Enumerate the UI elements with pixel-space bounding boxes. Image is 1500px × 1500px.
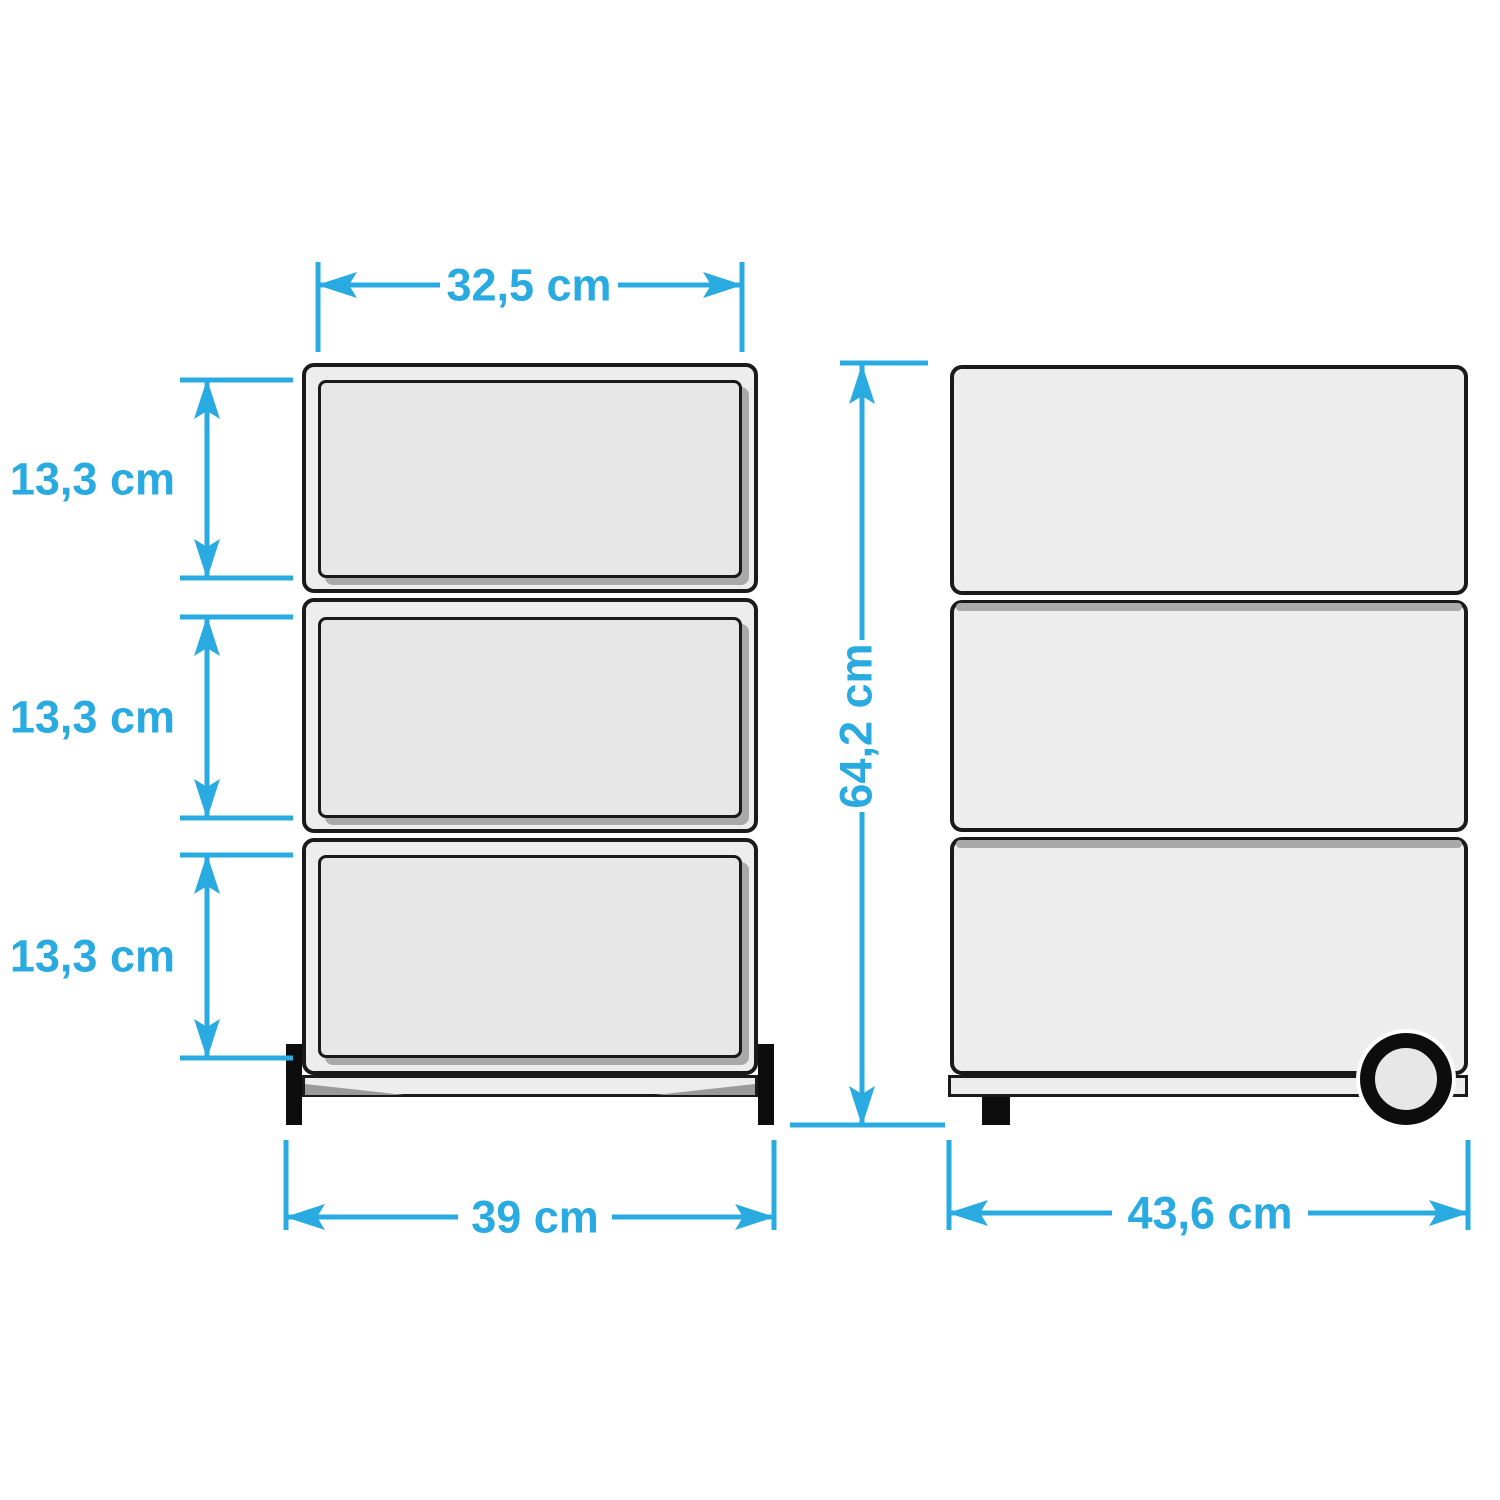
drawer-front-3 (318, 855, 742, 1058)
dim-drawer-height-3 (180, 855, 293, 1058)
drawer-front-2 (318, 617, 742, 818)
front-left-caster (286, 1044, 302, 1125)
front-right-caster (758, 1044, 774, 1125)
label-drawer-height-2: 13,3 cm (10, 695, 175, 740)
label-drawer-height-1: 13,3 cm (10, 457, 175, 502)
side-section-2 (950, 600, 1468, 832)
side-section-3-shadow-band (956, 840, 1462, 848)
label-total-depth: 43,6 cm (1127, 1191, 1292, 1236)
dimension-diagram: 32,5 cm 13,3 cm 13,3 cm 13,3 cm 39 cm 64… (0, 0, 1500, 1500)
front-base-plinth (302, 1075, 758, 1097)
label-total-width: 39 cm (471, 1195, 599, 1240)
side-rear-wheel (1360, 1033, 1452, 1125)
label-drawer-width: 32,5 cm (446, 263, 611, 308)
drawer-front-1 (318, 380, 742, 578)
label-total-height: 64,2 cm (834, 643, 879, 808)
label-drawer-height-3: 13,3 cm (10, 934, 175, 979)
dim-drawer-height-2 (180, 617, 293, 818)
side-section-1 (950, 365, 1468, 595)
side-front-foot (982, 1097, 1010, 1125)
side-section-2-shadow-band (956, 603, 1462, 611)
dim-drawer-height-1 (180, 380, 293, 578)
